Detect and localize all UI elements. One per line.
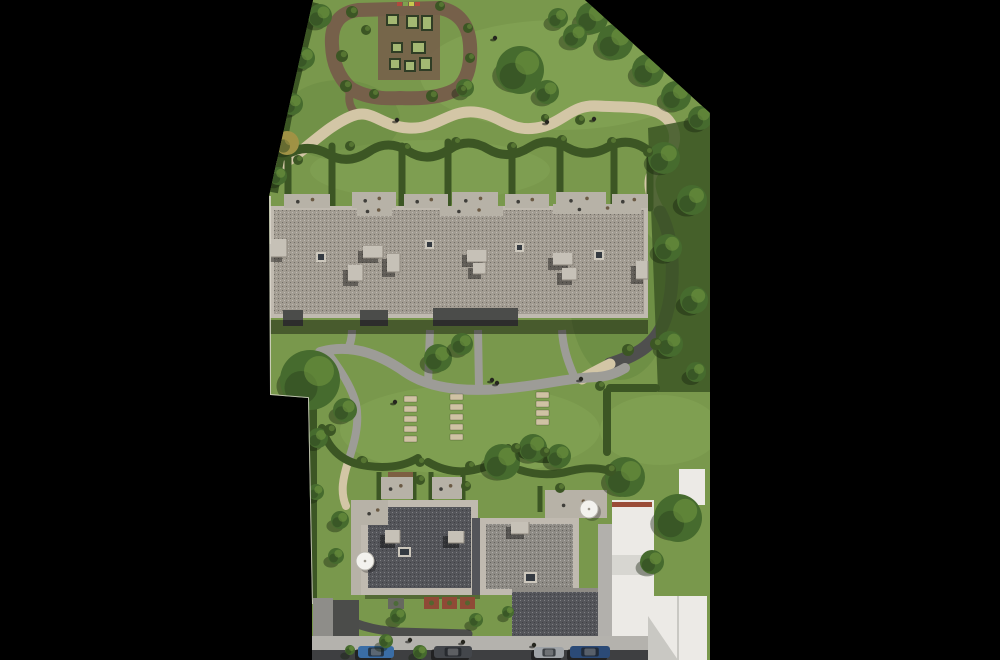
shrub — [401, 143, 411, 153]
shrub — [426, 90, 438, 102]
shrub — [604, 464, 616, 476]
roof-skylight — [515, 243, 524, 252]
shrub — [650, 338, 662, 350]
shrub — [361, 25, 371, 35]
parked-car — [355, 646, 394, 660]
stepping-stone — [536, 419, 549, 425]
parked-car — [431, 646, 472, 660]
terrace-patio — [352, 192, 396, 208]
balcony-planter — [424, 597, 439, 609]
flower-strip — [415, 2, 420, 6]
terrace-patio — [404, 194, 448, 208]
shrub — [555, 483, 565, 493]
terrace-patio — [452, 192, 498, 208]
building1-roof-texture — [274, 210, 644, 314]
flower-strip — [409, 2, 414, 6]
shrub — [356, 456, 368, 468]
shrub — [622, 344, 634, 356]
raised-garden-bed — [386, 14, 399, 26]
shrub — [369, 89, 379, 99]
stepping-stone — [450, 394, 463, 400]
balcony-planter — [442, 597, 457, 609]
shrub — [465, 461, 475, 471]
roof-skylight — [316, 252, 326, 262]
terrace-patio — [440, 206, 503, 216]
balcony-planters-layer — [388, 597, 475, 609]
roof-skylight — [524, 572, 537, 583]
stepping-stone — [450, 404, 463, 410]
building-1 — [270, 204, 648, 334]
stepping-stone — [450, 434, 463, 440]
terrace-patio — [553, 204, 641, 214]
parked-car — [567, 646, 610, 660]
raised-garden-bed — [391, 42, 403, 53]
white-building-terracotta-edge — [612, 502, 652, 507]
building2-west-terrace — [351, 500, 361, 595]
raised-garden-bed — [404, 60, 416, 72]
stepping-stone — [404, 416, 417, 422]
roof-skylight — [594, 250, 604, 260]
building1-south-shadow — [270, 320, 648, 334]
terrace-patio — [361, 500, 388, 525]
shrub — [415, 457, 425, 467]
stepping-stone — [536, 410, 549, 416]
raised-garden-bed — [421, 15, 433, 31]
shrub — [293, 155, 303, 165]
raised-garden-bed — [419, 57, 432, 71]
terrace-patio — [381, 477, 413, 499]
stepping-stone — [536, 401, 549, 407]
garage-ramp-light — [313, 598, 333, 638]
parked-car — [531, 647, 564, 660]
lawn-shade-patch — [600, 395, 720, 465]
shrub — [435, 1, 445, 11]
shrub — [461, 481, 471, 491]
shrub — [575, 115, 585, 125]
shrub — [595, 381, 605, 391]
balcony-planter — [388, 598, 404, 609]
shrub — [415, 475, 425, 485]
flower-strip — [397, 2, 402, 6]
flower-strip — [403, 2, 408, 6]
site-plan-svg — [0, 0, 1000, 660]
shrub — [607, 137, 617, 147]
shrub — [457, 85, 467, 95]
terrace-patio — [357, 206, 392, 216]
garage-ramp-dark — [333, 600, 359, 638]
balcony-planter — [460, 597, 475, 609]
shrub — [643, 147, 653, 157]
shrub — [507, 142, 517, 152]
shrub — [346, 6, 358, 18]
terrace-patio — [505, 194, 549, 208]
gabled-white-roof — [648, 596, 707, 660]
shrub — [324, 424, 336, 436]
shrub — [557, 135, 567, 145]
aerial-site-plan — [0, 0, 1000, 660]
shrub — [540, 447, 550, 457]
shrub — [465, 53, 475, 63]
stepping-stone — [404, 436, 417, 442]
roof-skylight — [398, 547, 411, 557]
stepping-stone — [450, 414, 463, 420]
roof-skylight — [425, 240, 434, 249]
stepping-stone — [536, 392, 549, 398]
stepping-stone — [404, 406, 417, 412]
shrub — [336, 50, 348, 62]
shrub — [345, 141, 355, 151]
stepping-stone — [404, 396, 417, 402]
raised-garden-bed — [406, 15, 419, 29]
terrace-patio — [284, 194, 330, 208]
shrub — [451, 137, 461, 147]
stepping-stone — [404, 426, 417, 432]
raised-garden-bed — [389, 58, 401, 70]
terrace-patio — [432, 477, 462, 499]
raised-garden-bed — [411, 41, 426, 54]
stepping-stone — [450, 424, 463, 430]
shrub — [340, 80, 352, 92]
shrub — [511, 443, 521, 453]
shrub — [463, 23, 473, 33]
